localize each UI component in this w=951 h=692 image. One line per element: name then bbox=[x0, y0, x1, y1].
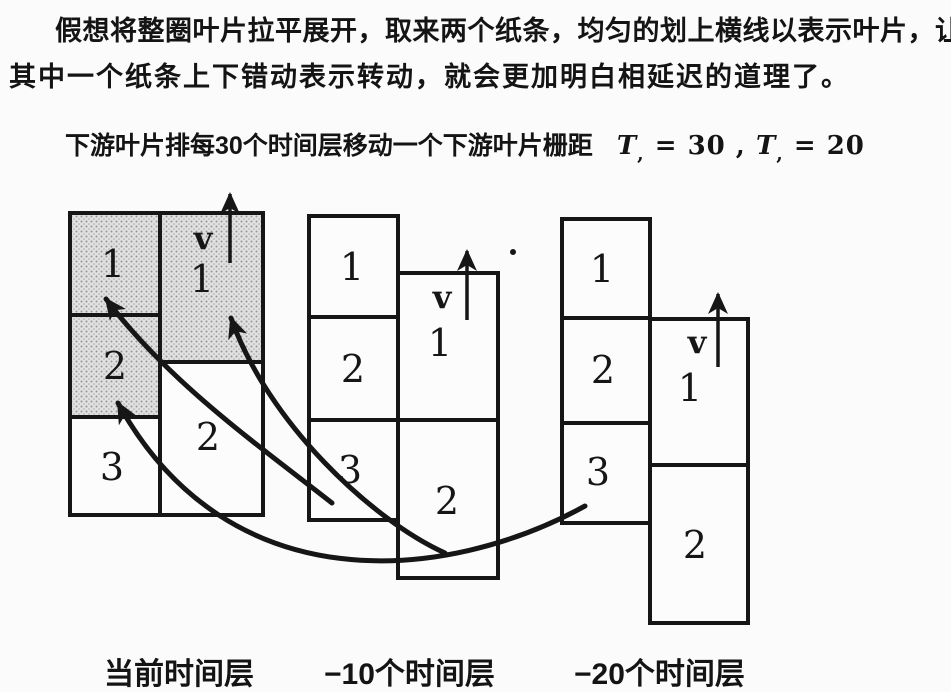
g2-velocity-label: v bbox=[432, 278, 453, 316]
footer-label-minus20: −20个时间层 bbox=[574, 649, 745, 692]
g1-rotor-label-2: 2 bbox=[196, 415, 220, 459]
group-minus-20-time-layers: 1 2 3 1 2 v bbox=[562, 219, 748, 623]
g1-stator-label-1: 1 bbox=[101, 242, 125, 286]
g3-stator-label-2: 2 bbox=[591, 348, 615, 392]
g2-rotor-label-1: 1 bbox=[428, 321, 452, 365]
g3-stator-label-1: 1 bbox=[590, 247, 614, 291]
g1-velocity-label: v bbox=[193, 219, 214, 257]
g1-stator-label-3: 3 bbox=[100, 445, 124, 489]
g3-rotor-label-2: 2 bbox=[683, 523, 707, 567]
footer-label-minus10: −10个时间层 bbox=[324, 649, 495, 692]
group-current-time-layer: 1 2 3 1 2 v bbox=[70, 194, 263, 515]
g2-stator-label-1: 1 bbox=[340, 245, 364, 289]
g2-stator-label-2: 2 bbox=[341, 347, 365, 391]
g1-rotor-label-1: 1 bbox=[190, 257, 214, 301]
group-minus-10-time-layers: 1 2 3 1 2 v bbox=[309, 216, 498, 578]
g3-stator-label-3: 3 bbox=[586, 450, 610, 494]
ink-dot bbox=[510, 249, 516, 255]
g3-velocity-label: v bbox=[687, 323, 708, 361]
g2-rotor-label-2: 2 bbox=[435, 479, 459, 523]
g1-stator-label-2: 2 bbox=[103, 344, 127, 388]
blade-row-time-layer-diagram: 1 2 3 1 2 v 1 2 3 1 2 v bbox=[0, 0, 951, 692]
g3-rotor-label-1: 1 bbox=[678, 366, 702, 410]
footer-label-current: 当前时间层 bbox=[104, 649, 254, 692]
scanned-page: 假想将整圈叶片拉平展开，取来两个纸条，均匀的划上横线以表示叶片，让 其中一个纸条… bbox=[0, 0, 951, 692]
